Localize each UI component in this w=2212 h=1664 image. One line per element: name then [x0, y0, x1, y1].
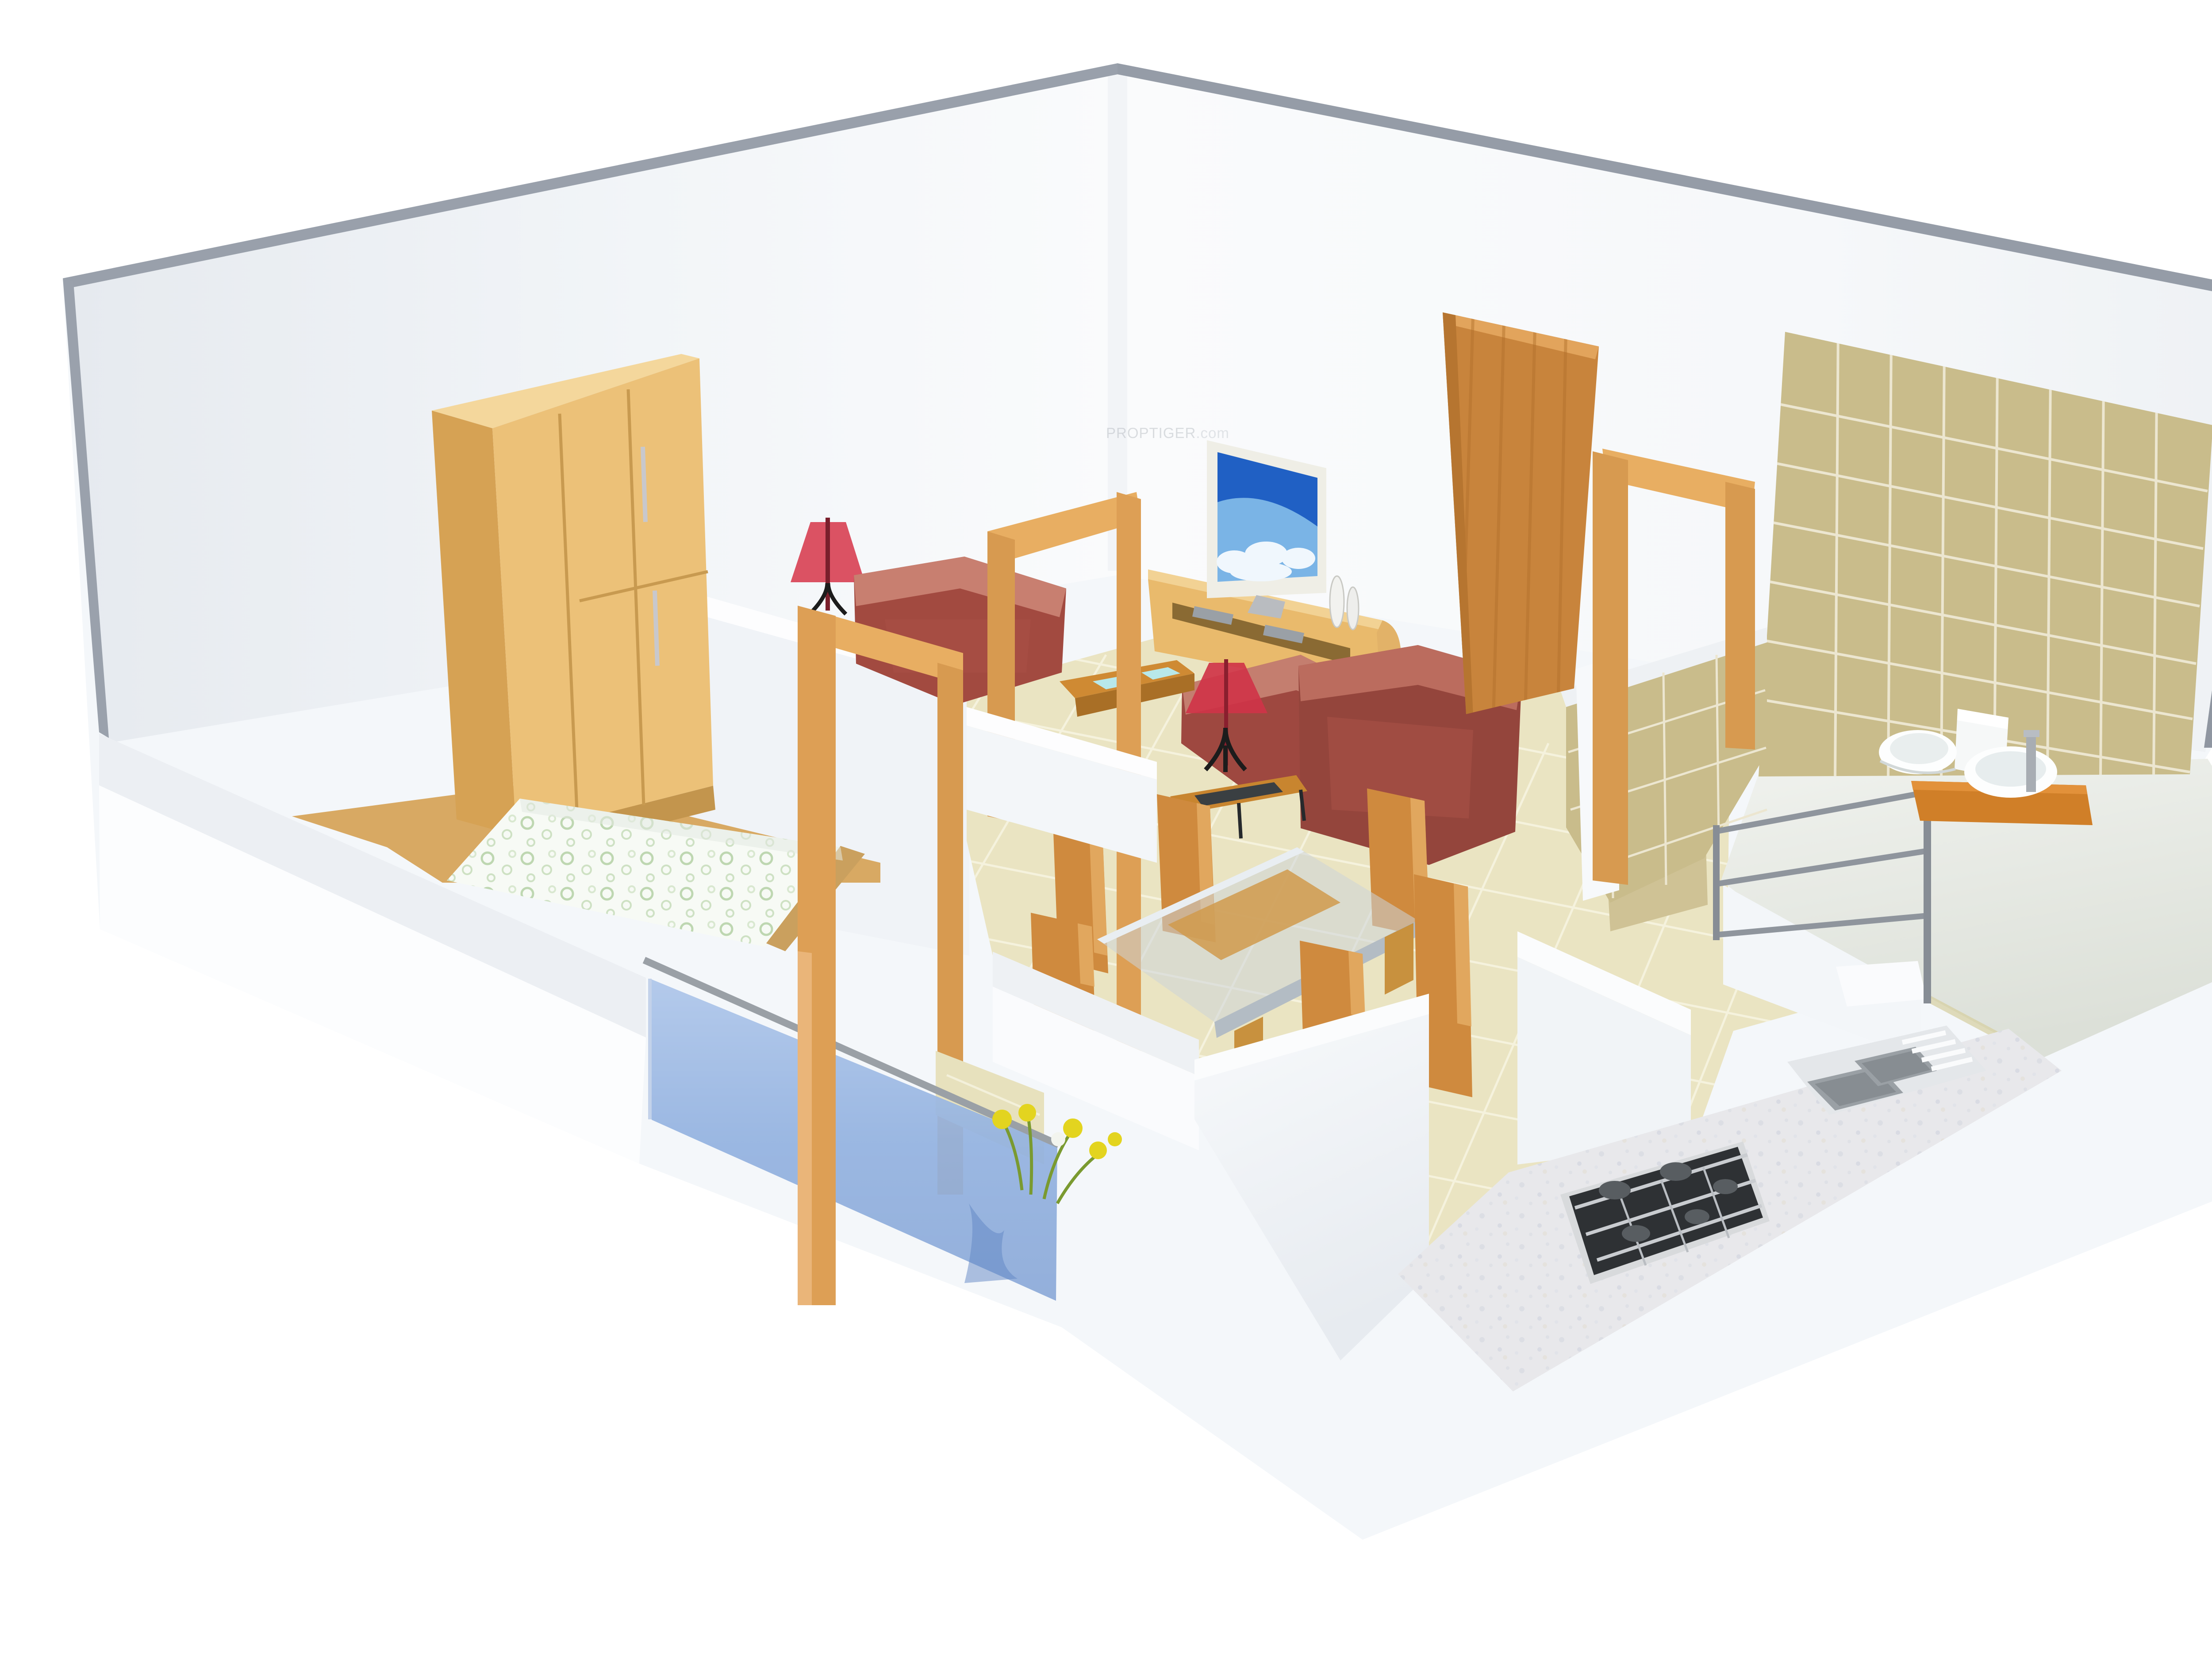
svg-text:PROPTIGER.com: PROPTIGER.com — [1106, 425, 1229, 441]
